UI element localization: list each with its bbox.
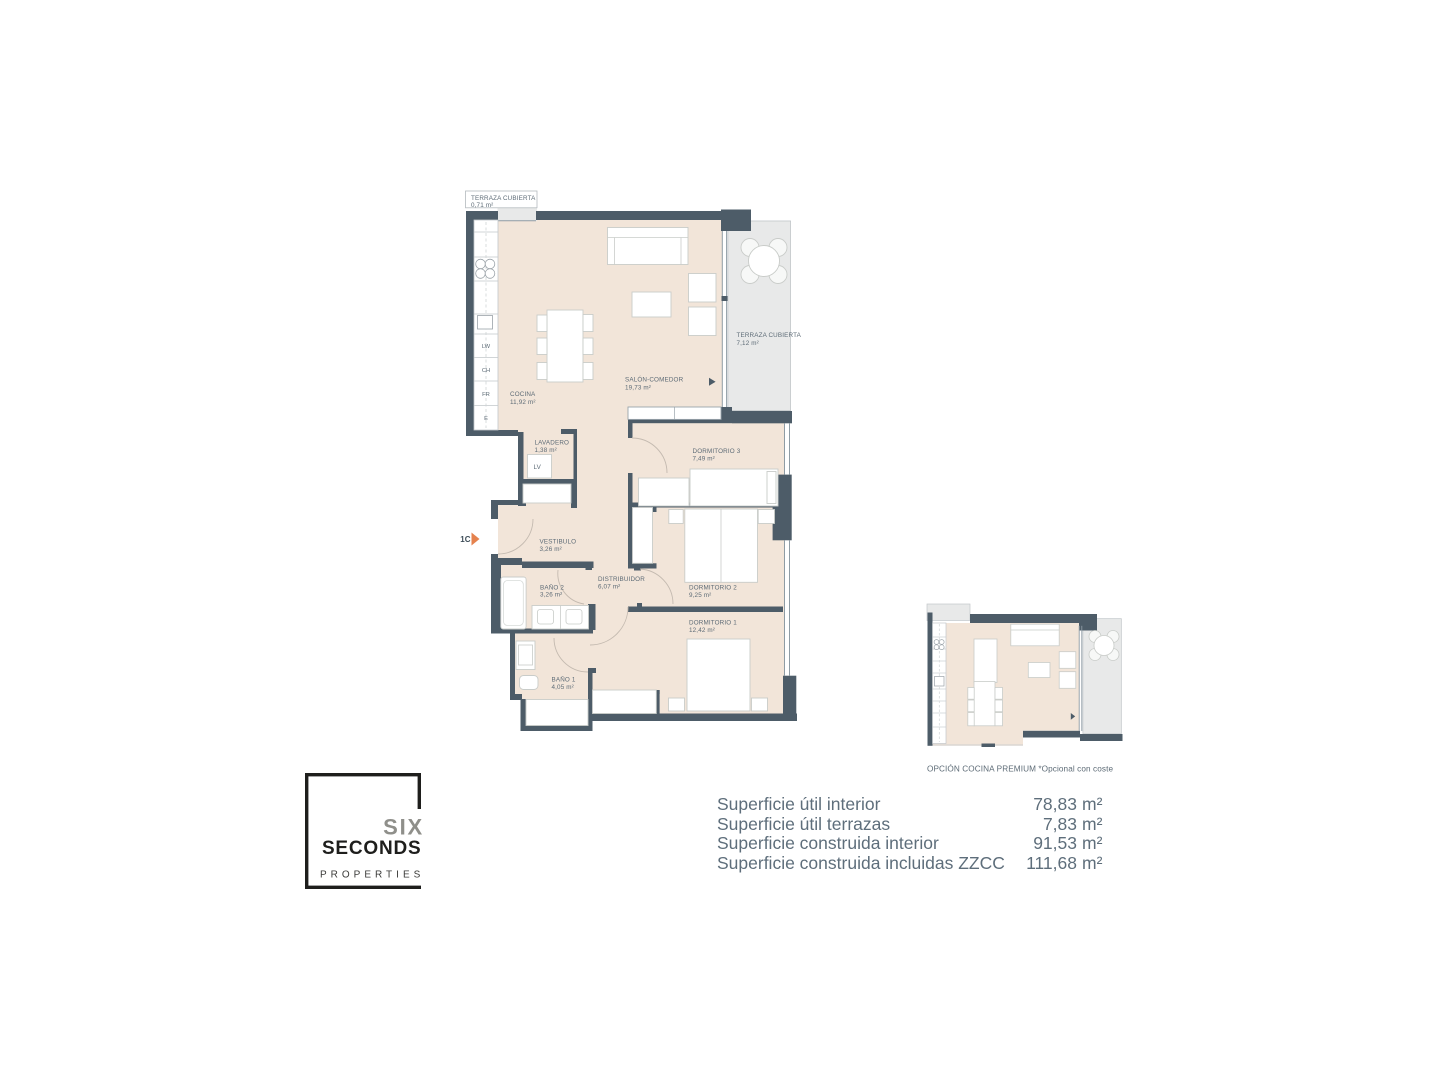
svg-text:DORMITORIO 2: DORMITORIO 2: [689, 585, 737, 592]
svg-text:7,12 m²: 7,12 m²: [737, 340, 759, 347]
svg-text:LW: LW: [482, 344, 491, 350]
svg-text:BAÑO 2: BAÑO 2: [540, 583, 564, 592]
svg-text:E: E: [484, 416, 488, 422]
svg-text:OPCIÓN COCINA PREMIUM *Opciona: OPCIÓN COCINA PREMIUM *Opcional con cost…: [927, 764, 1113, 774]
svg-text:12,42 m²: 12,42 m²: [689, 627, 715, 634]
svg-text:DISTRIBUIDOR: DISTRIBUIDOR: [598, 576, 645, 583]
svg-text:LAVADERO: LAVADERO: [535, 440, 570, 447]
svg-text:BAÑO 1: BAÑO 1: [552, 675, 576, 684]
svg-text:FR: FR: [482, 392, 490, 398]
svg-text:7,49 m²: 7,49 m²: [693, 456, 715, 463]
svg-text:4,05 m²: 4,05 m²: [552, 684, 574, 691]
svg-text:6,07 m²: 6,07 m²: [598, 584, 620, 591]
svg-text:3,26 m²: 3,26 m²: [540, 592, 562, 599]
svg-text:VESTIBULO: VESTIBULO: [540, 539, 577, 546]
svg-text:1,38 m²: 1,38 m²: [535, 447, 557, 454]
svg-text:1C: 1C: [460, 535, 470, 544]
svg-text:DORMITORIO 3: DORMITORIO 3: [693, 448, 741, 455]
svg-text:3,26 m²: 3,26 m²: [540, 546, 562, 553]
svg-text:11,92 m²: 11,92 m²: [510, 399, 536, 406]
svg-text:CH: CH: [482, 368, 490, 374]
svg-text:19,73 m²: 19,73 m²: [625, 384, 651, 391]
svg-text:TERRAZA CUBIERTA: TERRAZA CUBIERTA: [471, 195, 536, 202]
svg-text:0,71 m²: 0,71 m²: [471, 202, 493, 209]
svg-text:TERRAZA CUBIERTA: TERRAZA CUBIERTA: [737, 332, 802, 339]
svg-text:PROPERTIES: PROPERTIES: [320, 870, 424, 881]
svg-text:9,25 m²: 9,25 m²: [689, 592, 711, 599]
svg-text:SIX: SIX: [383, 815, 424, 840]
svg-text:SALÓN-COMEDOR: SALÓN-COMEDOR: [625, 375, 684, 384]
svg-text:SECONDS: SECONDS: [322, 838, 422, 859]
svg-text:COCINA: COCINA: [510, 391, 536, 398]
svg-text:LV: LV: [534, 464, 542, 471]
svg-text:DORMITORIO 1: DORMITORIO 1: [689, 620, 737, 627]
